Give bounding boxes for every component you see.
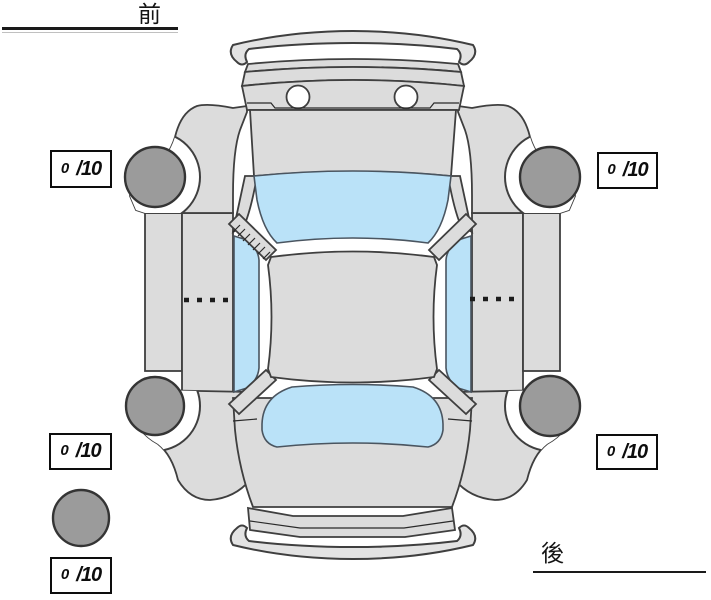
score-denominator: /10 bbox=[623, 159, 648, 182]
rear-window bbox=[262, 385, 443, 448]
car-top-view bbox=[0, 0, 711, 600]
score-value: 0 bbox=[61, 566, 69, 583]
left-headlight-icon bbox=[287, 86, 310, 109]
left-door-panel bbox=[182, 213, 233, 397]
tire-score-rear-right: 0/10 bbox=[596, 434, 658, 470]
tire-score-spare: 0/10 bbox=[50, 557, 112, 594]
front-label-underline bbox=[2, 27, 178, 30]
score-denominator: /10 bbox=[622, 441, 647, 464]
score-value: 0 bbox=[607, 443, 615, 460]
tire-rear-left bbox=[126, 377, 184, 435]
score-denominator: /10 bbox=[76, 158, 101, 181]
tire-score-rear-left: 0/10 bbox=[49, 433, 112, 470]
rear-label-underline bbox=[533, 571, 706, 573]
right-door-panel bbox=[472, 213, 523, 397]
roof bbox=[268, 252, 437, 383]
tire-front-left bbox=[125, 147, 185, 207]
rear-direction-label: 後 bbox=[541, 542, 564, 565]
car-condition-diagram: 前 後 0/10 0/10 0/10 0/10 0/10 bbox=[0, 0, 711, 600]
left-side-window bbox=[234, 236, 259, 392]
tire-spare bbox=[53, 490, 109, 546]
front-panel bbox=[242, 80, 464, 110]
tire-score-front-left: 0/10 bbox=[50, 150, 112, 188]
right-headlight-icon bbox=[395, 86, 418, 109]
right-side-window bbox=[446, 236, 471, 392]
score-denominator: /10 bbox=[76, 440, 101, 463]
score-denominator: /10 bbox=[76, 564, 101, 587]
windshield bbox=[254, 171, 451, 243]
front-label-underline-shadow bbox=[2, 32, 178, 33]
right-sill-panel bbox=[523, 213, 560, 371]
rear-valance bbox=[248, 508, 455, 537]
hood bbox=[250, 110, 456, 176]
score-value: 0 bbox=[61, 160, 69, 177]
left-sill-panel bbox=[145, 213, 182, 371]
tire-rear-right bbox=[520, 376, 580, 436]
tire-score-front-right: 0/10 bbox=[597, 152, 658, 189]
front-direction-label: 前 bbox=[138, 3, 161, 26]
score-value: 0 bbox=[60, 442, 68, 459]
score-value: 0 bbox=[607, 161, 615, 178]
tire-front-right bbox=[520, 147, 580, 207]
